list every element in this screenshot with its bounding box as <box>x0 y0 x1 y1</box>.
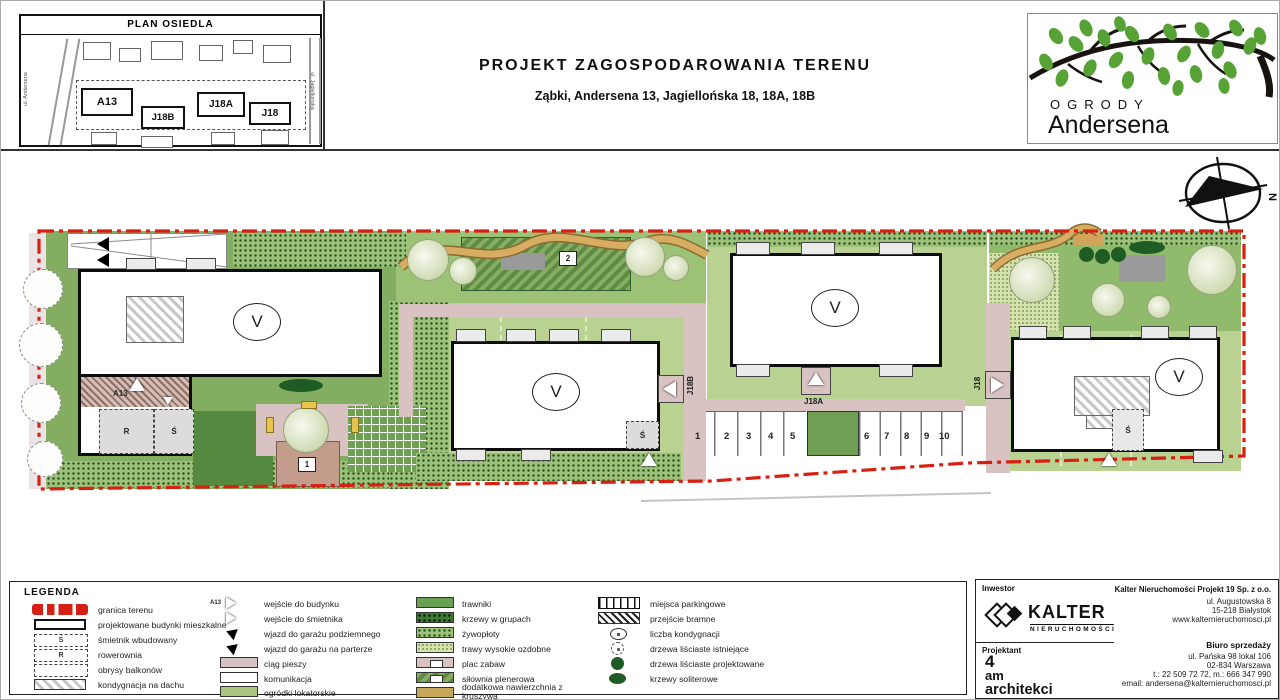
legend-hedges-swatch <box>416 627 454 638</box>
logo-word-andersena: Andersena <box>1048 111 1169 140</box>
legend-label: projektowane budynki mieszkalne <box>98 620 227 630</box>
entrance-label-a13: A13 <box>113 389 128 398</box>
balcony-outline <box>736 242 770 255</box>
parking-number: 9 <box>924 431 929 442</box>
compass: N <box>1179 157 1278 229</box>
garage-entry-arrow-1 <box>97 237 109 251</box>
existing-tree-icon <box>611 642 624 655</box>
legend-label: śmietnik wbudowany <box>98 635 177 645</box>
balcony-outline <box>521 449 551 461</box>
planted-tree <box>1079 247 1094 262</box>
planted-tree <box>1095 249 1110 264</box>
sales-email: email: andersena@kalternieruchomosci.pl <box>1122 679 1271 689</box>
balcony-outline <box>1019 326 1047 339</box>
legend-circulation-swatch <box>220 672 258 683</box>
garden-tree <box>1009 257 1055 303</box>
legend-label: granica terenu <box>98 605 153 615</box>
legend: LEGENDA granica terenu projektowane budy… <box>9 581 967 695</box>
minimap-building-a13: A13 <box>81 88 133 116</box>
legend-label: wejście do budynku <box>264 599 339 609</box>
existing-tree <box>27 441 63 477</box>
balcony-outline <box>1189 326 1217 339</box>
parking-number: 1 <box>695 431 700 442</box>
garden-structure-2 <box>1119 255 1165 282</box>
legend-label: miejsca parkingowe <box>650 599 725 609</box>
legend-label: żywopłoty <box>462 629 500 639</box>
compass-north-label: N <box>1266 193 1278 201</box>
parking-number: 5 <box>790 431 795 442</box>
storey-count-icon <box>610 628 627 640</box>
garden-tree <box>449 257 477 285</box>
minimap-title: PLAN OSIEDLA <box>21 16 320 35</box>
playground-marker: 1 <box>298 457 316 472</box>
legend-label: plac zabaw <box>462 659 505 669</box>
legend-label: drzewa liściaste projektowane <box>650 659 764 669</box>
storey-count-j18b: V <box>532 373 580 411</box>
legend-label: krzewy w grupach <box>462 614 531 624</box>
entrance-arrow-j18a <box>808 372 824 385</box>
walkway-parcel2-top <box>399 304 706 317</box>
legend-parking-swatch <box>598 597 640 609</box>
minimap-building <box>119 48 141 62</box>
logo-word-ogrody: OGRODY <box>1050 97 1150 112</box>
page-title: PROJEKT ZAGOSPODAROWANIA TERENU <box>331 57 1019 75</box>
minimap-street-left-label: ul. Andersena <box>23 72 29 106</box>
legend-label: kondygnacja na dachu <box>98 680 184 690</box>
parking-number: 3 <box>746 431 751 442</box>
bench <box>266 417 274 433</box>
minimap-building <box>263 45 291 63</box>
parking-number: 4 <box>768 431 773 442</box>
walkway-above-parking <box>689 399 965 411</box>
legend-label: wejście do śmietnika <box>264 614 343 624</box>
existing-tree <box>23 269 63 309</box>
balcony-outline <box>879 364 913 377</box>
plaza-tree <box>283 407 329 453</box>
legend-label: przejście bramne <box>650 614 715 624</box>
trash-room-j18b: Ś <box>626 421 659 449</box>
minimap-building <box>199 45 223 61</box>
legend-tall-grass-swatch <box>416 642 454 653</box>
entrance-arrow-a13 <box>129 378 145 391</box>
garden-tree <box>625 237 665 277</box>
investor-designer-box: Inwestor KALTER NIERUCHOMOŚCI Projektant… <box>975 579 1115 699</box>
ground-garage-entry-icon <box>224 641 238 656</box>
roof-hatch-a13 <box>126 296 184 343</box>
solitary-shrub-icon <box>609 673 626 684</box>
kalter-subtitle: NIERUCHOMOŚCI <box>1030 624 1116 633</box>
legend-label: ciąg pieszy <box>264 659 307 669</box>
architect-line3: architekci <box>985 682 1053 698</box>
planted-tree-icon <box>611 657 624 670</box>
legend-shrub-groups-swatch <box>416 612 454 623</box>
legend-label: wjazd do garażu podziemnego <box>264 629 381 639</box>
underground-garage-entry-icon <box>224 626 238 641</box>
garden-tree <box>663 255 689 281</box>
legend-label: wjazd do garażu na parterze <box>264 644 372 654</box>
contact-info-box: Kalter Nieruchomości Projekt 19 Sp. z o.… <box>1114 579 1279 699</box>
legend-boundary-swatch <box>32 604 88 615</box>
minimap-building <box>151 41 183 60</box>
investor-label: Inwestor <box>982 584 1015 593</box>
gym-marker: 2 <box>559 251 577 266</box>
company-name: Kalter Nieruchomości Projekt 19 Sp. z o.… <box>1115 585 1271 594</box>
bench <box>351 417 359 433</box>
storey-count-j18: V <box>1155 358 1203 396</box>
legend-tenant-gardens-swatch <box>220 686 258 697</box>
minimap-street-right-label: ul. Jagiellońska <box>309 72 315 110</box>
legend-label: trawniki <box>462 599 491 609</box>
legend-bike-swatch: R <box>34 649 88 662</box>
parcel1-hedge-band <box>233 233 406 267</box>
minimap-building <box>233 40 253 54</box>
minimap-road-left <box>48 39 69 146</box>
company-website: www.kalternieruchomosci.pl <box>1172 615 1271 625</box>
legend-gravel-swatch <box>416 687 454 698</box>
hedge-maze <box>348 406 426 472</box>
garden-tree <box>1187 245 1237 295</box>
entrance-label-j18: J18 <box>973 377 982 390</box>
legend-label: ogródki lokatorskie <box>264 688 336 698</box>
minimap-building <box>211 132 235 145</box>
estate-minimap: PLAN OSIEDLA ul. Andersena ul. Jagielloń… <box>19 14 322 147</box>
trash-entrance-icon <box>226 612 236 624</box>
balcony-outline <box>801 242 835 255</box>
garden-tree <box>1147 295 1171 319</box>
legend-balcony-swatch <box>34 664 88 677</box>
investor-divider <box>976 642 1114 643</box>
legend-label: obrysy balkonów <box>98 665 162 675</box>
entrance-arrow-j18 <box>991 377 1004 393</box>
balcony-outline <box>456 449 486 461</box>
legend-label: rowerownia <box>98 650 142 660</box>
legend-lawn-swatch <box>416 597 454 608</box>
outdoor-gym-area <box>461 237 631 291</box>
legend-pedestrian-swatch <box>220 657 258 668</box>
balcony-outline <box>126 258 156 270</box>
existing-tree <box>19 323 63 367</box>
minimap-building <box>141 136 173 148</box>
minimap-building-j18a: J18A <box>197 92 245 117</box>
legend-title: LEGENDA <box>24 587 80 598</box>
sales-office-title: Biuro sprzedaży <box>1206 640 1271 650</box>
legend-building-swatch <box>34 619 86 630</box>
balcony-outline <box>506 329 536 342</box>
legend-roof-storey-swatch <box>34 679 86 690</box>
entrance-arrow-j18-bottom <box>1101 453 1117 466</box>
site-plan-sheet: PLAN OSIEDLA ul. Andersena ul. Jagielloń… <box>0 0 1280 700</box>
architect-line2: am <box>985 670 1004 682</box>
bike-room: R <box>99 409 154 454</box>
entrance-label-j18a: J18A <box>804 397 823 406</box>
tree-branch-illustration <box>1028 16 1277 98</box>
minimap-building-j18b: J18B <box>141 106 185 129</box>
shrub-row <box>1129 241 1165 254</box>
legend-playground-swatch <box>416 657 454 668</box>
legend-entry-code: A13 <box>210 600 221 606</box>
minimap-building <box>83 42 111 60</box>
trash-room-j18: Ś <box>1112 409 1144 451</box>
balcony-outline <box>549 329 579 342</box>
trash-room-a13: Ś <box>154 409 194 454</box>
building-a13-main <box>78 269 382 377</box>
legend-label: dodatkowa nawierzchnia z kruszywa <box>462 683 572 700</box>
garden-tree <box>407 239 449 281</box>
architect-line1: 4 <box>985 654 994 669</box>
parcel4-hedge-top <box>989 231 1241 245</box>
garden-structure <box>501 253 545 270</box>
balcony-outline <box>1193 450 1223 463</box>
legend-label: drzewa liściaste istniejące <box>650 644 749 654</box>
planted-tree <box>1111 247 1126 262</box>
balcony-outline <box>736 364 770 377</box>
header-divider-left <box>323 1 325 149</box>
parking-number: 7 <box>884 431 889 442</box>
minimap-building <box>261 130 289 145</box>
parking-number: 6 <box>864 431 869 442</box>
kalter-wordmark: KALTER <box>1028 602 1106 623</box>
entrance-arrow-j18b <box>663 381 676 397</box>
trash-entrance-arrow-a13 <box>163 397 173 405</box>
balcony-outline <box>601 329 631 342</box>
minimap-building <box>91 132 117 145</box>
garden-tree <box>1091 283 1125 317</box>
balcony-outline <box>879 242 913 255</box>
balcony-outline <box>186 258 216 270</box>
minimap-road-right2 <box>319 38 321 144</box>
gravel-patch <box>1073 234 1103 245</box>
storey-count-j18a: V <box>811 289 859 327</box>
parking-number: 8 <box>904 431 909 442</box>
entrance-arrow-j18b-bottom <box>641 453 657 466</box>
balcony-outline <box>1141 326 1169 339</box>
legend-label: trawy wysokie ozdobne <box>462 644 551 654</box>
existing-tree <box>21 383 61 423</box>
balcony-outline <box>456 329 486 342</box>
parking-number: 10 <box>939 431 950 442</box>
bench <box>301 401 317 409</box>
page-subtitle: Ząbki, Andersena 13, Jagiellońska 18, 18… <box>331 89 1019 103</box>
legend-gym-swatch <box>416 672 454 683</box>
brand-logo: OGRODY Andersena <box>1027 13 1278 144</box>
legend-label: komunikacja <box>264 674 312 684</box>
legend-label: krzewy soliterowe <box>650 674 718 684</box>
parking-number: 2 <box>724 431 729 442</box>
legend-label: liczba kondygnacji <box>650 629 720 639</box>
balcony-outline <box>1063 326 1091 339</box>
minimap-building-j18: J18 <box>249 102 291 125</box>
garage-entry-arrow-2 <box>97 253 109 267</box>
shrub-row <box>279 379 323 392</box>
building-entrance-icon <box>226 597 236 609</box>
walkway-parcel2-left <box>399 317 413 417</box>
legend-gate-passage-swatch <box>598 612 640 624</box>
legend-trash-swatch: Ś <box>34 634 88 647</box>
parking-planting-square <box>807 411 859 456</box>
entrance-label-j18b: J18B <box>686 376 695 395</box>
storey-count-a13: V <box>233 303 281 341</box>
header-rule <box>1 149 1280 151</box>
